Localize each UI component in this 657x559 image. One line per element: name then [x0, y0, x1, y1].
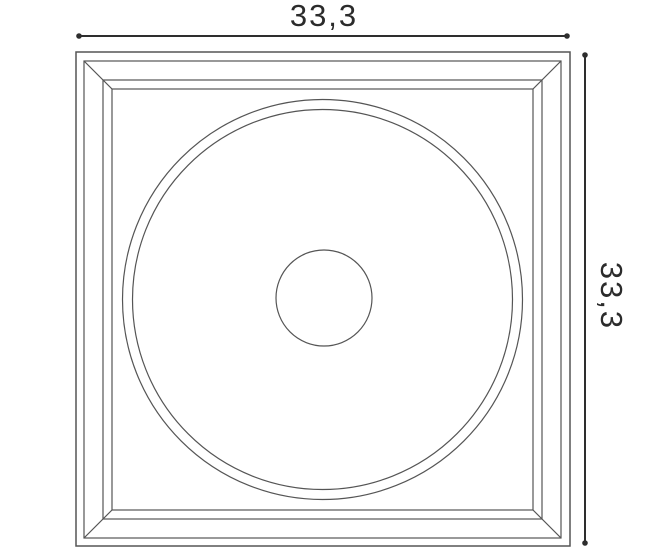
dimension-endpoint-dot — [564, 33, 570, 39]
miter-line-bottom-left — [84, 510, 112, 538]
miter-line-top-left — [84, 61, 112, 89]
dimension-endpoint-dot — [582, 52, 588, 58]
dimension-endpoint-dot — [582, 540, 588, 546]
panel-groove-outer — [103, 80, 542, 519]
center-medallion-circle — [276, 250, 372, 346]
frame-inner-edge — [84, 61, 561, 538]
width-dimension-label: 33,3 — [290, 0, 358, 33]
dimension-labels-group: 33,3 33,3 — [290, 0, 629, 330]
drawing-canvas: 33,3 33,3 — [0, 0, 657, 559]
dimension-endpoint-dot — [76, 33, 82, 39]
height-dimension-label: 33,3 — [594, 262, 629, 330]
panel-outline-group — [76, 52, 570, 546]
dimension-lines-group — [79, 36, 585, 543]
miter-line-top-right — [533, 61, 561, 89]
panel-technical-drawing: 33,3 33,3 — [0, 0, 657, 559]
panel-groove-inner — [112, 89, 533, 510]
miter-line-bottom-right — [533, 510, 561, 538]
ring-inner-circle — [133, 110, 513, 490]
panel-outer-edge — [76, 52, 570, 546]
ring-outer-circle — [123, 100, 523, 500]
